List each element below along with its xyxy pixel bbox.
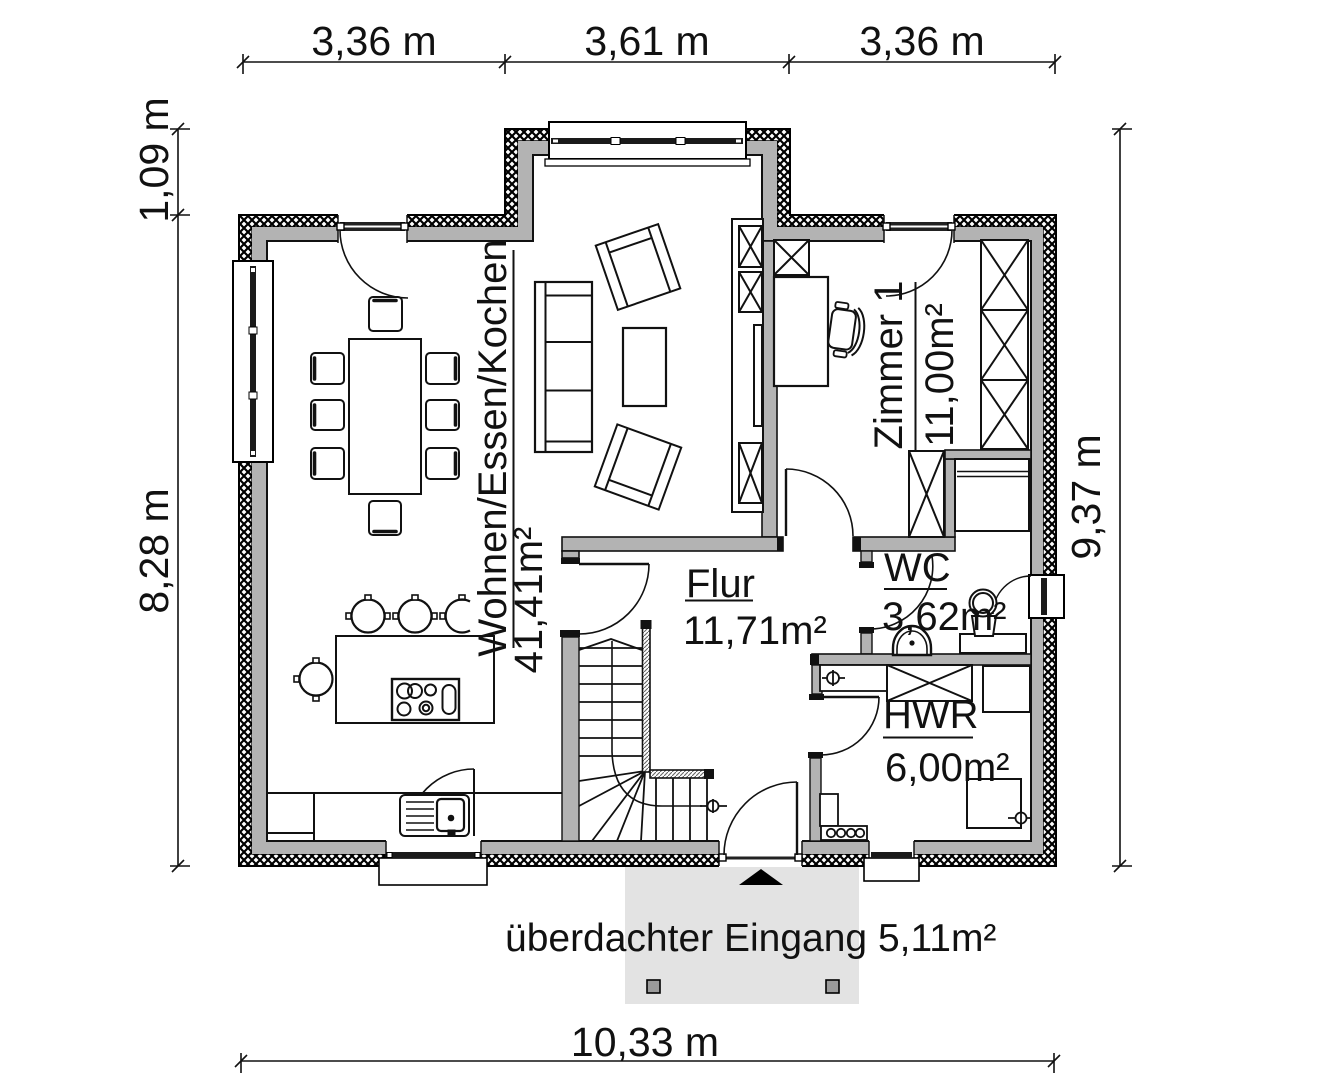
svg-text:10,33 m: 10,33 m bbox=[571, 1019, 719, 1065]
svg-text:1,09 m: 1,09 m bbox=[131, 97, 177, 222]
svg-text:HWR: HWR bbox=[883, 693, 979, 737]
svg-text:11,71m²: 11,71m² bbox=[683, 609, 827, 653]
svg-text:6,00m²: 6,00m² bbox=[885, 746, 1010, 790]
svg-text:WC: WC bbox=[884, 546, 951, 590]
svg-text:9,37 m: 9,37 m bbox=[1063, 434, 1109, 559]
svg-text:3,36 m: 3,36 m bbox=[859, 18, 984, 64]
svg-text:3,62m²: 3,62m² bbox=[882, 595, 1007, 639]
svg-text:Zimmer 1: Zimmer 1 bbox=[867, 281, 911, 450]
svg-text:3,61 m: 3,61 m bbox=[584, 18, 709, 64]
svg-text:Flur: Flur bbox=[686, 562, 755, 606]
svg-text:überdachter Eingang 5,11m²: überdachter Eingang 5,11m² bbox=[505, 917, 996, 960]
svg-text:8,28 m: 8,28 m bbox=[131, 488, 177, 613]
svg-text:41,41m²: 41,41m² bbox=[507, 527, 551, 674]
svg-text:3,36 m: 3,36 m bbox=[311, 18, 436, 64]
svg-text:11,00m²: 11,00m² bbox=[918, 303, 962, 447]
